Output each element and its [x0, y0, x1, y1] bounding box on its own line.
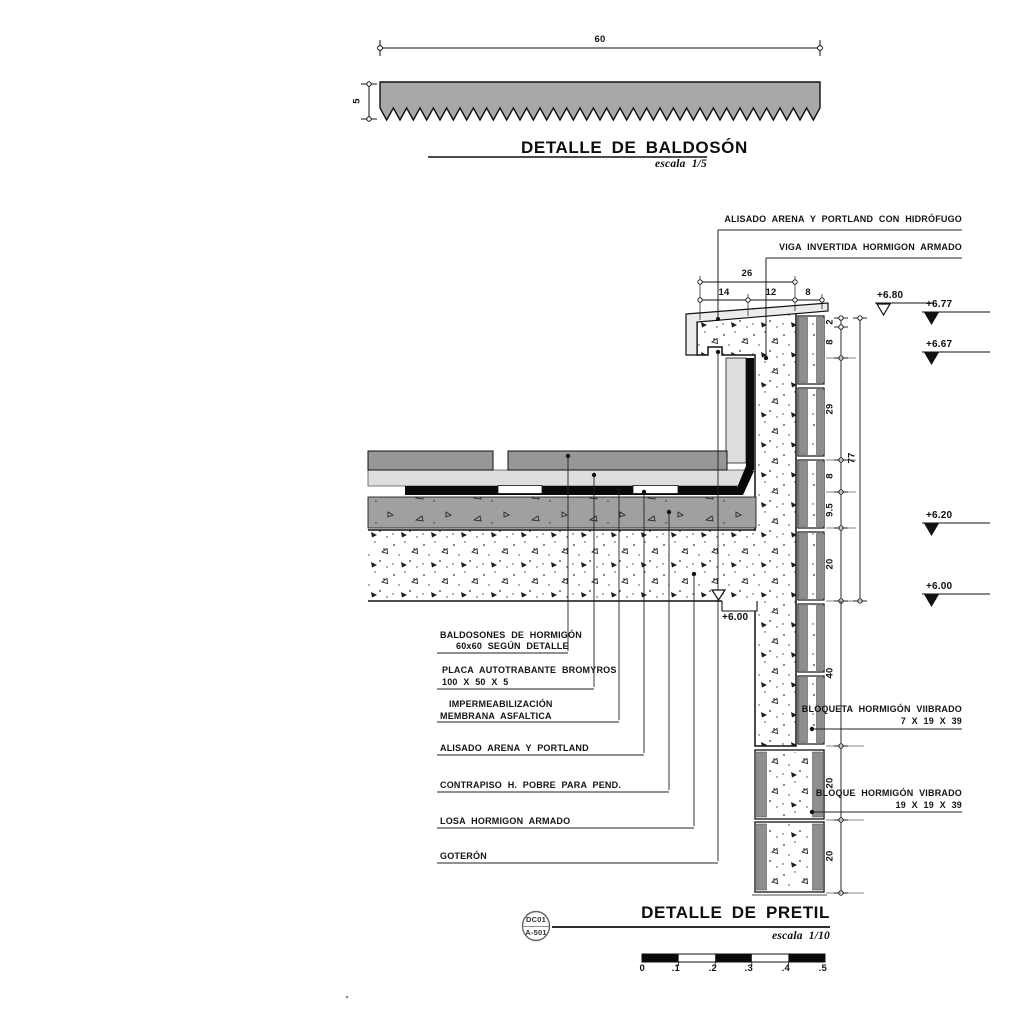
- elevation-667: +6.67: [926, 339, 952, 350]
- dim-right-40: 40: [825, 668, 836, 679]
- dim-right-20b: 20: [825, 778, 836, 789]
- bloqueta-course: [798, 316, 825, 384]
- annotation-bloqueta-l2: 7 X 19 X 39: [901, 716, 962, 726]
- annotation-bloque-l1: BLOQUE HORMIGÓN VIBRADO: [816, 788, 962, 798]
- screed-upturn: [726, 358, 746, 463]
- annotation-membrana-l1: IMPERMEABILIZACIÓN: [449, 699, 553, 709]
- annotation-goteron: GOTERÓN: [440, 851, 487, 861]
- drawing-sheet: 60 5 DETALLE DE BALDOSÓN escala 1/5 ALIS…: [0, 0, 1024, 1024]
- soffit-drip-lip: [722, 601, 757, 611]
- roof-slab: [368, 530, 756, 601]
- elevation-620: +6.20: [926, 510, 952, 521]
- level-triangle-icon: [925, 353, 938, 364]
- dim-top-1: 14: [719, 287, 730, 298]
- bloqueta-course: [798, 388, 825, 456]
- bloque-block: [755, 750, 824, 819]
- bloque-block: [752, 822, 827, 895]
- annotation-placa-l2: 100 X 50 X 5: [442, 677, 508, 687]
- level-triangle-icon: [925, 524, 938, 535]
- pretil-scale-label: escala 1/10: [772, 930, 830, 942]
- dim-right-9-5: 9.5: [825, 503, 836, 517]
- bloqueta-course: [798, 532, 825, 600]
- elevation-680: +6.80: [877, 290, 903, 301]
- annotation-coating: ALISADO ARENA Y PORTLAND CON HIDRÓFUGO: [724, 214, 962, 224]
- sheet-code: DC01: [526, 915, 546, 924]
- contrapiso-layer: [368, 497, 756, 528]
- dim-top-total: 26: [742, 268, 753, 279]
- dim-right-29: 29: [825, 404, 836, 415]
- dim-right-8a: 8: [825, 339, 836, 344]
- annotation-bloqueta-l1: BLOQUETA HORMIGÓN VIIBRADO: [802, 704, 962, 714]
- annotation-membrana-l2: MEMBRANA ASFALTICA: [440, 711, 552, 721]
- dim-right-20c: 20: [825, 851, 836, 862]
- dim-thickness-value: 5: [352, 98, 363, 103]
- annotation-baldosones-l2: 60x60 SEGÚN DETALLE: [456, 641, 569, 651]
- dim-right-total: 77: [847, 453, 858, 464]
- baldoson-title: DETALLE DE BALDOSÓN: [521, 138, 748, 158]
- scalebar-tick-2: .2: [709, 963, 717, 974]
- bloqueta-column: [798, 316, 825, 744]
- dim-right-8b: 8: [825, 473, 836, 478]
- dim-width-value: 60: [595, 34, 606, 45]
- annotation-inverted-beam: VIGA INVERTIDA HORMIGON ARMADO: [779, 242, 962, 252]
- stray-mark: [346, 996, 349, 999]
- annotation-losa: LOSA HORMIGON ARMADO: [440, 816, 570, 826]
- dim-right-20a: 20: [825, 559, 836, 570]
- annotation-baldosones-l1: BALDOSONES DE HORMIGÓN: [440, 630, 582, 640]
- pretil-title: DETALLE DE PRETIL: [641, 903, 830, 923]
- sheet-ref: A-501: [525, 928, 546, 937]
- baldoson-tile-section: [380, 82, 820, 120]
- annotation-placa-l1: PLACA AUTOTRABANTE BROMYROS: [442, 665, 617, 675]
- level-triangle-icon: [925, 595, 938, 606]
- roof-tiles: [368, 451, 727, 470]
- placa-pad: [498, 486, 542, 494]
- scalebar-tick-3: .3: [745, 963, 753, 974]
- bloqueta-course: [798, 604, 825, 672]
- graphic-scale-bar: [642, 954, 825, 966]
- elevation-677: +6.77: [926, 299, 952, 310]
- baldoson-scale-label: escala 1/5: [655, 158, 707, 170]
- dim-right-2: 2: [825, 319, 836, 324]
- annotation-contrapiso: CONTRAPISO H. POBRE PARA PEND.: [440, 780, 621, 790]
- tile-bar-shape: [380, 82, 820, 120]
- bloqueta-course: [798, 460, 825, 528]
- bloque-column: [752, 750, 827, 895]
- open-level-triangle-icon: [877, 304, 890, 315]
- baldoson-dim-5: [361, 82, 377, 121]
- scalebar-tick-0: 0: [640, 963, 645, 974]
- annotation-bloque-l2: 19 X 19 X 39: [896, 800, 962, 810]
- drawing-linework: [0, 0, 1024, 1024]
- screed-layer: [368, 470, 746, 486]
- annotation-alisado: ALISADO ARENA Y PORTLAND: [440, 743, 589, 753]
- elevation-600: +6.00: [926, 581, 952, 592]
- scalebar-tick-5: .5: [819, 963, 827, 974]
- elevation-soffit: +6.00: [722, 612, 748, 623]
- scalebar-tick-1: .1: [672, 963, 680, 974]
- scalebar-tick-4: .4: [782, 963, 790, 974]
- placa-pad: [633, 486, 678, 494]
- dim-top-3: 8: [805, 287, 810, 298]
- level-triangle-icon: [925, 313, 938, 324]
- dim-top-2: 12: [766, 287, 777, 298]
